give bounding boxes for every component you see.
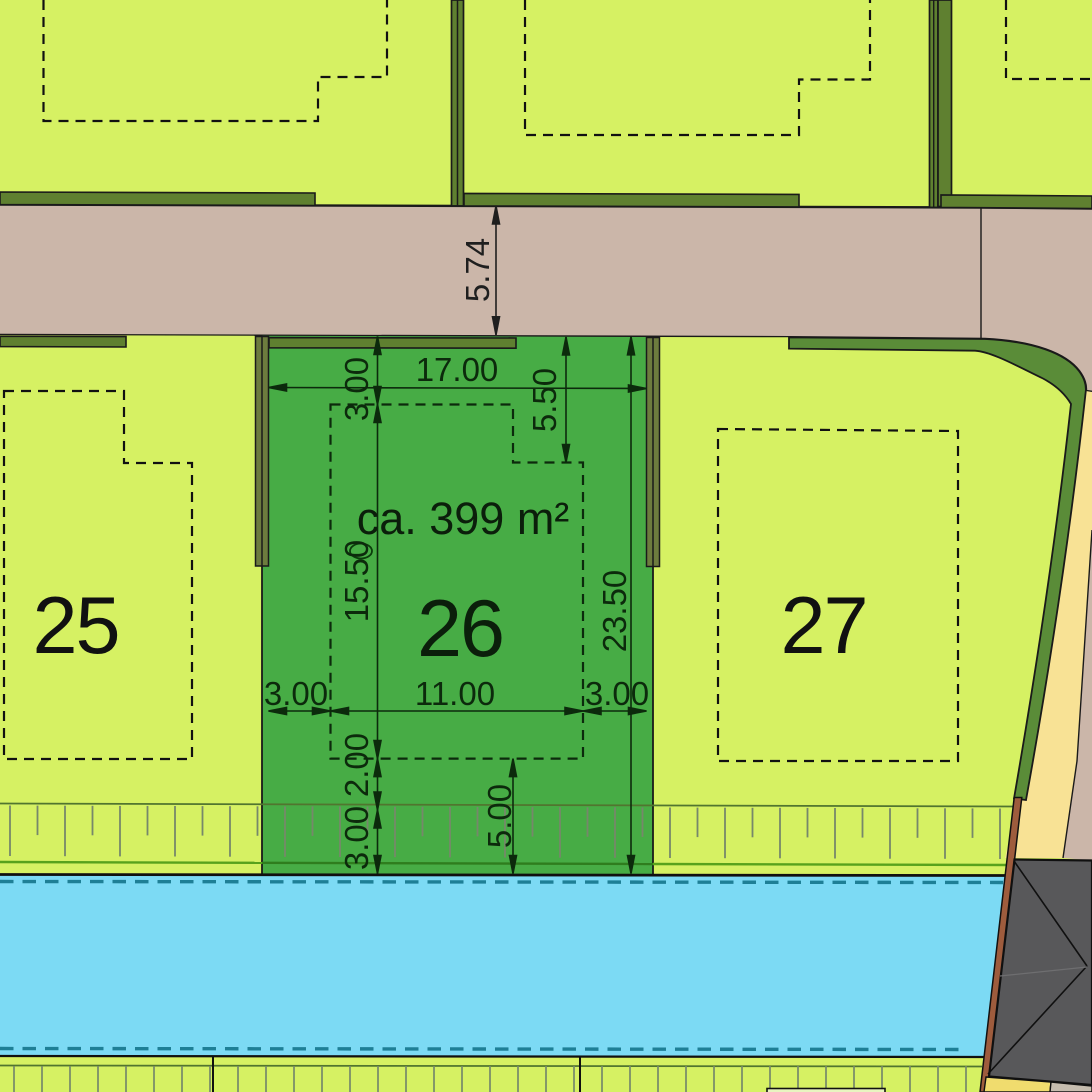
svg-text:3.00: 3.00 (585, 675, 649, 712)
svg-text:3.00: 3.00 (264, 675, 328, 712)
svg-text:ca. 399 m²: ca. 399 m² (357, 493, 570, 544)
svg-text:11.00: 11.00 (415, 675, 495, 712)
svg-text:25: 25 (32, 581, 118, 671)
svg-text:23.50: 23.50 (596, 570, 633, 653)
svg-text:5.74: 5.74 (459, 238, 496, 302)
svg-text:3.00: 3.00 (338, 806, 375, 870)
svg-text:27: 27 (780, 581, 866, 671)
svg-text:5.00: 5.00 (481, 784, 518, 848)
svg-text:5.50: 5.50 (526, 368, 563, 432)
svg-text:3.00: 3.00 (338, 357, 375, 421)
svg-text:26: 26 (417, 584, 503, 674)
svg-text:15.50: 15.50 (338, 540, 375, 623)
svg-text:17.00: 17.00 (416, 351, 499, 388)
svg-text:2.00: 2.00 (338, 733, 375, 797)
